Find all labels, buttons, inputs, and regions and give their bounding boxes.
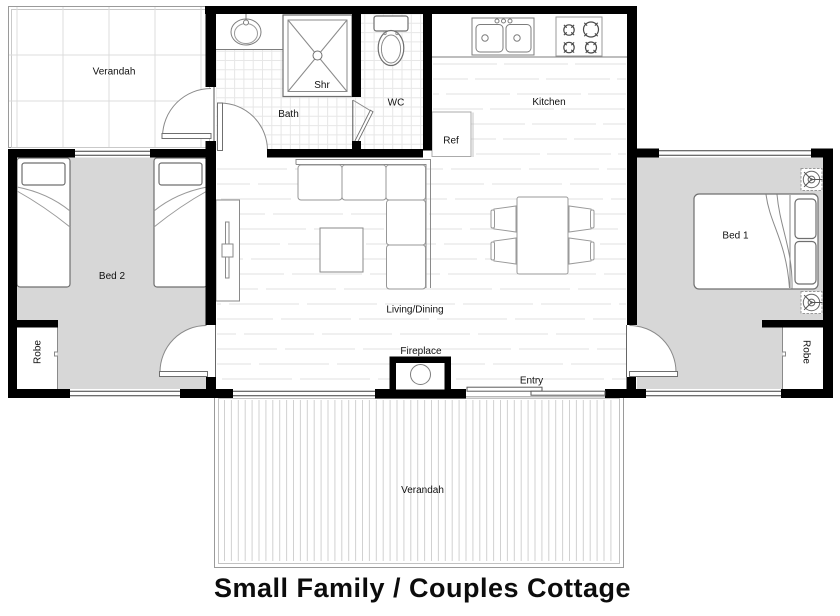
svg-text:Bath: Bath [278,109,299,120]
svg-text:Ref: Ref [443,136,459,147]
svg-text:Bed 2: Bed 2 [99,271,126,282]
svg-text:Robe: Robe [801,340,812,364]
svg-text:Bed 1: Bed 1 [722,231,749,242]
svg-text:Kitchen: Kitchen [532,97,565,108]
svg-text:Verandah: Verandah [93,67,136,78]
svg-text:Robe: Robe [33,340,44,364]
svg-text:Entry: Entry [520,376,543,387]
svg-text:Fireplace: Fireplace [400,346,442,357]
svg-text:WC: WC [388,98,405,109]
svg-text:Shr: Shr [314,80,330,91]
svg-text:Verandah: Verandah [401,485,444,496]
svg-text:Living/Dining: Living/Dining [386,305,443,316]
